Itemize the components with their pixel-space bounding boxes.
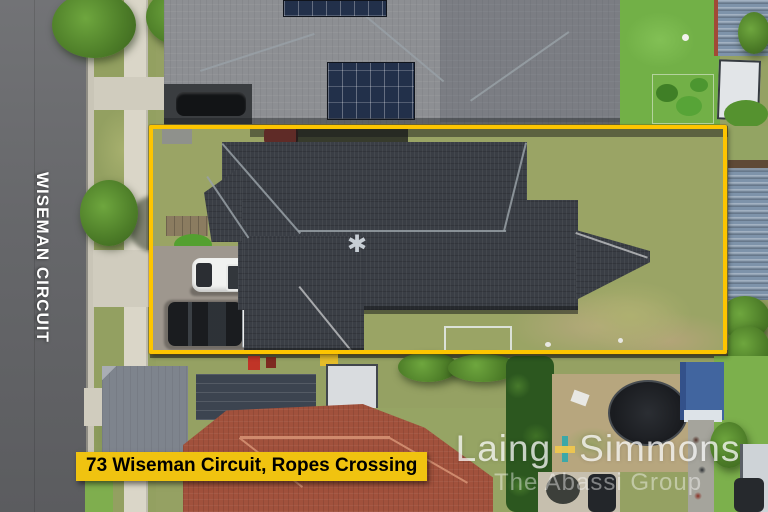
ball-on-lawn bbox=[682, 34, 689, 41]
parked-black-car bbox=[176, 92, 246, 116]
bush bbox=[738, 12, 768, 54]
red-roof-ridge bbox=[240, 436, 390, 439]
dark-vehicle bbox=[588, 474, 616, 512]
neighbor-gray-roof bbox=[102, 366, 188, 458]
side-path bbox=[688, 420, 714, 512]
driveway-apron-top bbox=[94, 77, 170, 110]
solar-panel-array bbox=[327, 62, 415, 120]
neighbor-roof-shading bbox=[440, 0, 620, 122]
neighbor-metal-roof-right bbox=[724, 168, 768, 300]
garden-plant bbox=[656, 84, 678, 102]
red-bin bbox=[248, 356, 260, 370]
aerial-photo: ✱ WISEMAN CIRCUIT 73 Wiseman Circuit, Ro… bbox=[0, 0, 768, 512]
street-tree bbox=[80, 180, 138, 246]
driveway-apron-subject bbox=[93, 250, 153, 307]
trampoline bbox=[608, 380, 688, 446]
street-name-label: WISEMAN CIRCUIT bbox=[30, 172, 52, 344]
grass-patch bbox=[85, 478, 113, 512]
property-boundary-outline bbox=[149, 125, 727, 354]
dark-red-bin bbox=[266, 357, 276, 368]
garden-plant bbox=[690, 78, 708, 92]
patio-furniture bbox=[546, 474, 580, 504]
fence-line bbox=[726, 160, 768, 168]
dark-object bbox=[734, 478, 764, 512]
garden-plant bbox=[676, 96, 702, 116]
address-banner: 73 Wiseman Circuit, Ropes Crossing bbox=[76, 452, 427, 481]
solar-panel-array bbox=[283, 0, 387, 17]
shrubs bbox=[724, 100, 768, 128]
